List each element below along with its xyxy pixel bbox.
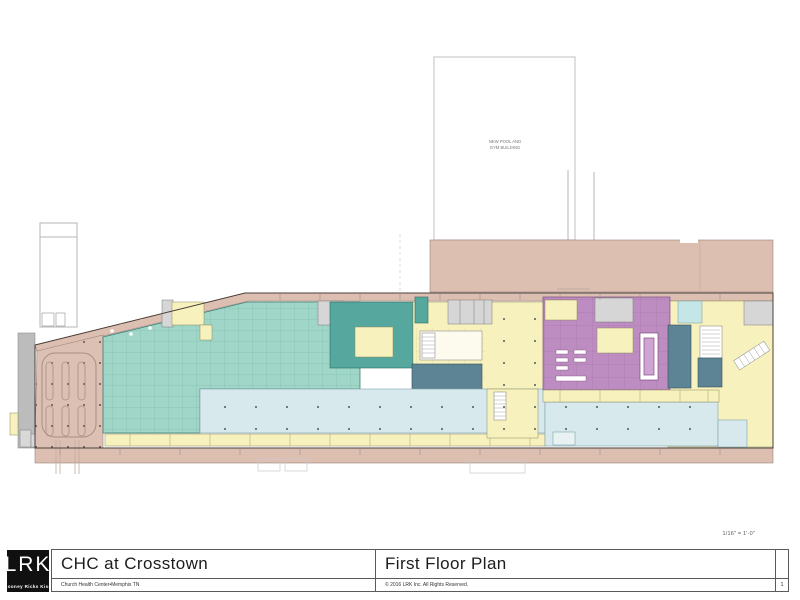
scale-note: 1/16" = 1'-0" [630, 531, 755, 537]
stair-west [422, 333, 435, 358]
corridor-kiosk [553, 432, 575, 445]
title-block: CHC at Crosstown Church Health Center•Me… [51, 549, 789, 592]
pool-label-line1: NEW POOL AND [489, 139, 521, 144]
room-cyan-east [678, 301, 702, 323]
zone-service-slate-c [698, 358, 722, 387]
title-block-number-cell: 1 [776, 550, 788, 591]
project-title: CHC at Crosstown [52, 550, 375, 578]
retail-strip-east [543, 390, 719, 402]
rooms-grey-northeast [744, 301, 773, 325]
sheet-number: 1 [776, 579, 788, 591]
room-blue-southeast [718, 420, 747, 447]
lobby-columns [485, 304, 543, 436]
zone-dining-purple [543, 297, 670, 390]
existing-building-notch [680, 238, 698, 243]
title-block-project-cell: CHC at Crosstown Church Health Center•Me… [52, 550, 376, 591]
title-block-drawing-cell: First Floor Plan © 2016 LRK Inc. All Rig… [376, 550, 776, 591]
drawing-title: First Floor Plan [376, 550, 775, 578]
retail-strip-west [105, 434, 545, 446]
project-subtitle: Church Health Center•Memphis TN [52, 578, 375, 591]
loading-dock-outline [40, 223, 77, 327]
zone-clinic-dark-teal [330, 302, 413, 368]
pool-label-line2: GYM BUILDING [490, 145, 520, 150]
existing-building-fill [430, 240, 773, 292]
existing-building-north [430, 238, 773, 292]
servery-counter [640, 333, 658, 380]
stair-east [700, 326, 722, 358]
lrk-logo: LRK Looney Ricks Kiss [7, 550, 49, 592]
zone-service-slate-b [668, 325, 691, 388]
zone-service-slate-a [412, 364, 482, 390]
drawing-sheet: NEW POOL AND GYM BUILDING [0, 0, 800, 600]
lrk-firm-name: Looney Ricks Kiss [5, 584, 52, 589]
copyright-note: © 2016 LRK Inc. All Rights Reserved. [376, 578, 775, 591]
arcade-band-bottom [35, 448, 773, 463]
floor-plan-drawing: NEW POOL AND GYM BUILDING [0, 0, 800, 600]
lrk-monogram: LRK [5, 554, 52, 575]
